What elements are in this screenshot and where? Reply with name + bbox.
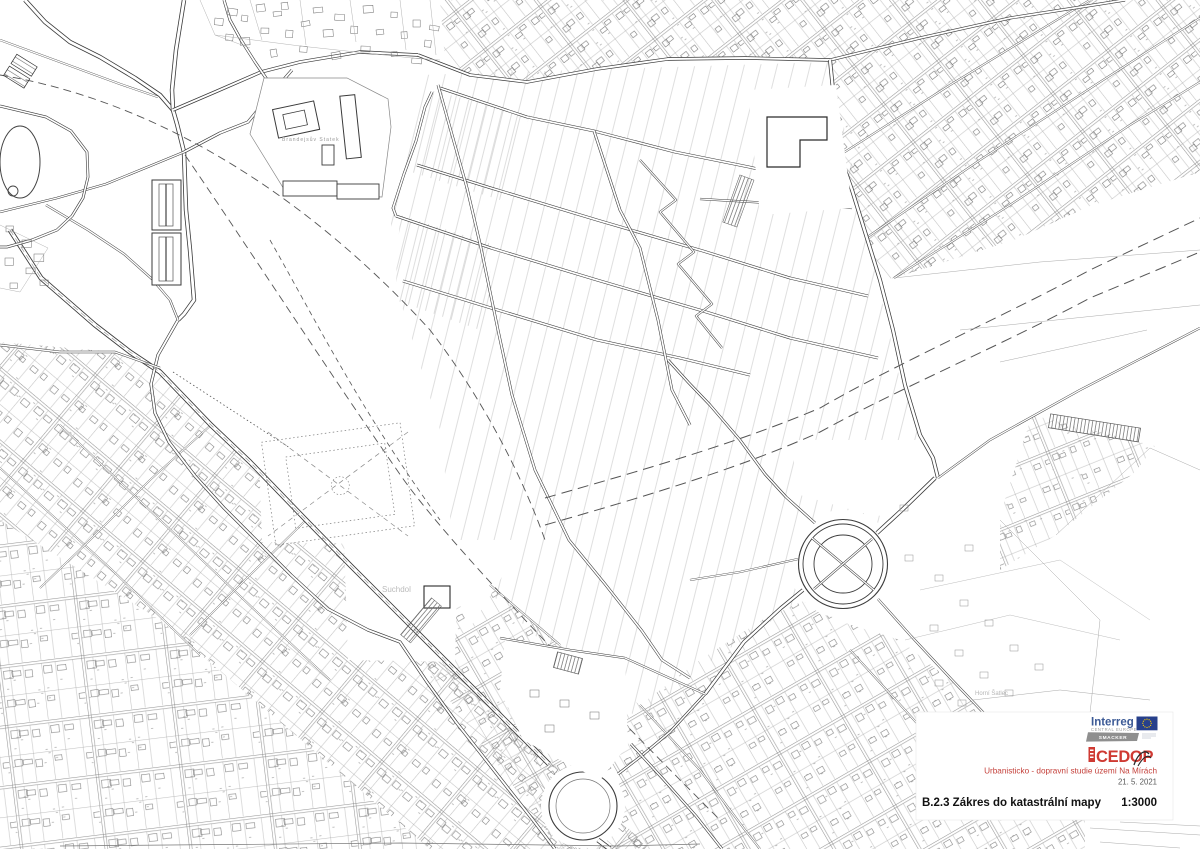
svg-text:SMACKER: SMACKER — [1099, 735, 1127, 741]
svg-text:1:3000: 1:3000 — [1121, 797, 1157, 809]
svg-text:Urbanisticko - dopravní studie: Urbanisticko - dopravní studie území Na … — [984, 767, 1157, 776]
svg-text:Horní Šatlec: Horní Šatlec — [975, 690, 1008, 697]
svg-text:Brandejsův Statek: Brandejsův Statek — [282, 136, 340, 143]
svg-text:B.2.3 Zákres do katastrální ma: B.2.3 Zákres do katastrální mapy — [922, 797, 1102, 809]
svg-text:21. 5. 2021: 21. 5. 2021 — [1118, 778, 1157, 787]
svg-text:Suchdol: Suchdol — [382, 585, 411, 594]
svg-text:CENTRAL EUROPE: CENTRAL EUROPE — [1091, 727, 1137, 732]
